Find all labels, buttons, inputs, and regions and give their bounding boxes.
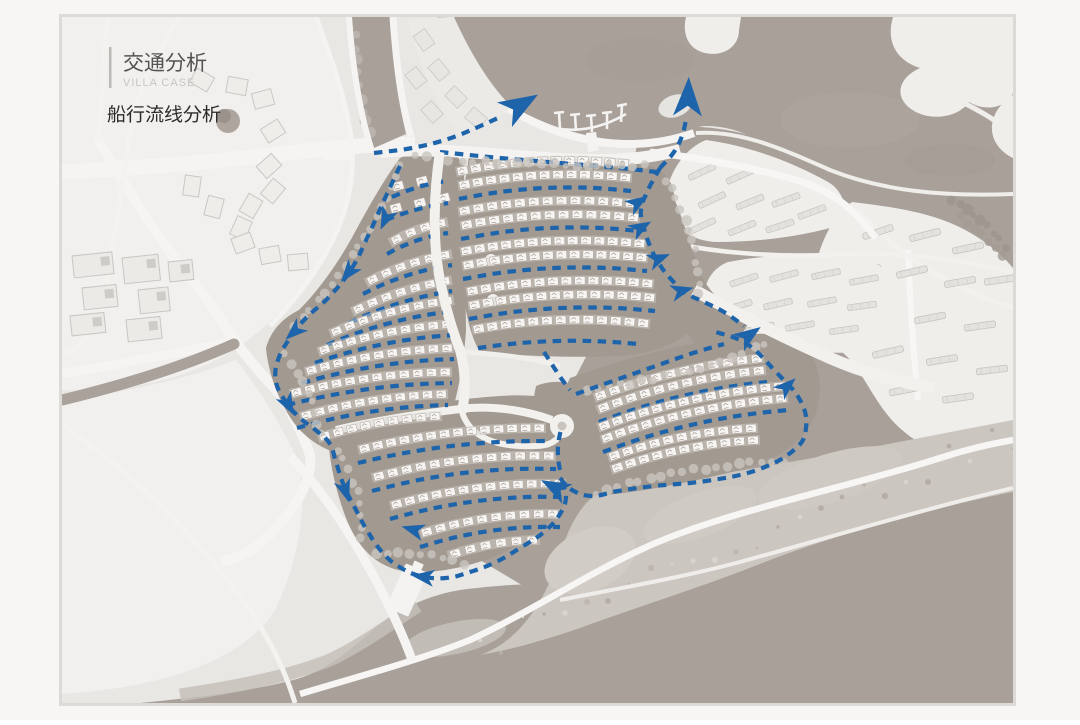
svg-text:VILLA CASE: VILLA CASE [123,77,195,89]
